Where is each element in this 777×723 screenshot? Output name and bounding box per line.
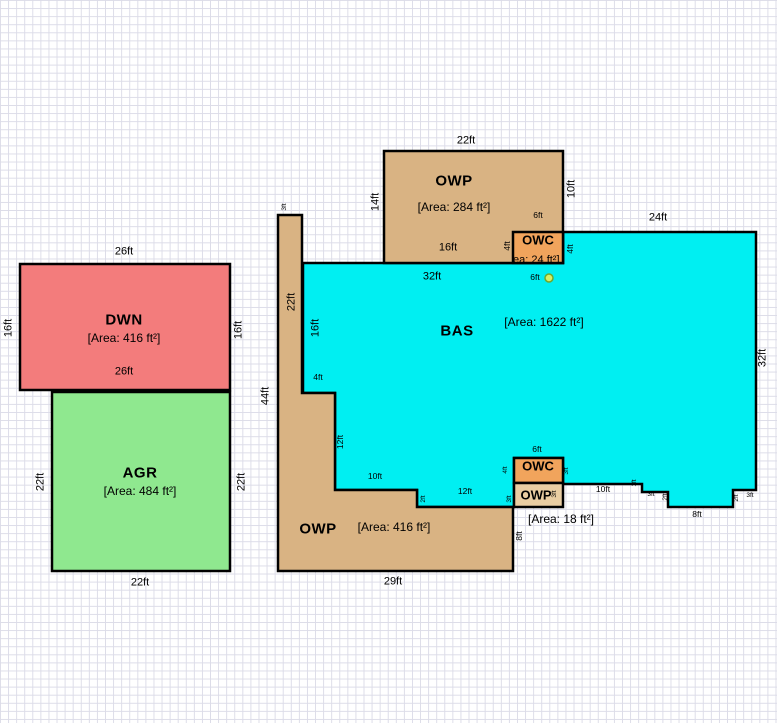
- area-owp-small-area: [Area: 18 ft²]: [528, 513, 594, 525]
- dim-bas-top-32ft: 32ft: [423, 272, 441, 283]
- dim-owp-small-right: 3ft: [552, 490, 559, 497]
- area-agr-area: [Area: 484 ft²]: [104, 485, 177, 497]
- area-owp-top-area: [Area: 284 ft²]: [418, 201, 491, 213]
- area-owp-bottom-area: [Area: 416 ft²]: [358, 521, 431, 533]
- area-dwn-area: [Area: 416 ft²]: [88, 332, 161, 344]
- dim-bas-top-24ft: 24ft: [649, 213, 667, 224]
- dim-bas-step-2ft-a: 2ft: [663, 493, 670, 500]
- area-agr-code: AGR: [123, 466, 158, 481]
- dim-owp-top-bottom: 16ft: [439, 243, 457, 254]
- dim-bas-bottom-10ft: 10ft: [596, 485, 610, 494]
- vertex-marker[interactable]: [545, 274, 553, 282]
- dim-owp-bottom-col-height: 22ft: [287, 293, 298, 311]
- dim-agr-bottom: 22ft: [131, 578, 149, 589]
- area-owp-top-code: OWP: [435, 174, 472, 189]
- area-owc-top-area: [Area: 24 ft²]: [512, 250, 572, 264]
- dim-bas-step-2ft: 2ft: [421, 495, 428, 502]
- dim-bas-bottom-12ft: 12ft: [458, 487, 472, 496]
- dim-owp-top-top: 22ft: [457, 136, 475, 147]
- dim-owc-top-right: 4ft: [566, 244, 575, 253]
- dim-dwn-bottom: 26ft: [115, 367, 133, 378]
- dim-dwn-top: 26ft: [115, 247, 133, 258]
- area-bas-code: BAS: [440, 324, 473, 339]
- dim-bas-step-4ft: 4ft: [313, 373, 322, 382]
- dim-bas-step-1ft: 1ft: [632, 479, 639, 486]
- dim-owc-bottom-left: 4ft: [503, 466, 510, 473]
- area-owp-small-code: OWP: [520, 489, 551, 502]
- dim-bas-marker-6ft: 6ft: [530, 273, 539, 282]
- dim-agr-right: 22ft: [237, 473, 248, 491]
- area-dwn-code: DWN: [105, 313, 142, 328]
- dim-bas-right-32ft: 32ft: [758, 349, 769, 367]
- dim-bas-step-12ft: 12ft: [336, 435, 345, 449]
- dim-owc-bottom-width: 6ft: [532, 445, 541, 454]
- dim-bas-step-2ft-b: 2ft: [734, 494, 741, 501]
- area-owc-top-code: OWC: [522, 234, 554, 247]
- sketch-shapes-layer: [0, 0, 777, 723]
- dim-bas-left-16ft: 16ft: [311, 319, 322, 337]
- dim-owp-bottom-44ft: 44ft: [261, 387, 272, 405]
- sketch-canvas: DWN [Area: 416 ft²] 26ft 16ft 16ft 26ft …: [0, 0, 777, 723]
- dim-owp-bottom-29ft: 29ft: [384, 577, 402, 588]
- area-owp-bottom-code: OWP: [299, 522, 336, 537]
- dim-bas-step-3ft-b: 3ft: [746, 493, 753, 500]
- dim-agr-left: 22ft: [36, 473, 47, 491]
- dim-bas-step-3ft-a: 3ft: [647, 492, 654, 499]
- dim-bas-step-10ft: 10ft: [368, 472, 382, 481]
- dim-owp-top-left: 14ft: [371, 193, 382, 211]
- dim-owp-small-left: 3ft: [507, 495, 514, 502]
- area-bas-area: [Area: 1622 ft²]: [504, 316, 583, 328]
- area-agr-shape[interactable]: [52, 392, 230, 571]
- dim-bas-bottom-8ft: 8ft: [692, 510, 701, 519]
- dim-dwn-right: 16ft: [234, 321, 245, 339]
- dim-owp-top-right: 10ft: [567, 180, 578, 198]
- dim-dwn-left: 16ft: [4, 319, 15, 337]
- dim-owp-bottom-right-8ft: 8ft: [515, 531, 524, 540]
- dim-owp-bottom-col-width: 3ft: [282, 203, 289, 210]
- area-owc-bottom-code: OWC: [522, 460, 554, 473]
- dim-owc-bottom-right: 3ft: [564, 467, 571, 474]
- dim-owc-top-width: 6ft: [533, 211, 542, 220]
- dim-owc-top-left: 4ft: [503, 241, 512, 250]
